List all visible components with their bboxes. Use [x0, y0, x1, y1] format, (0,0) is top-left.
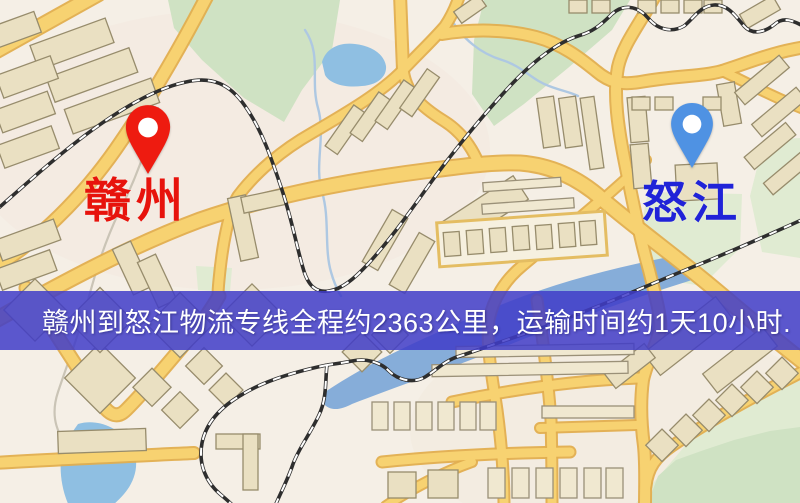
- destination-marker-icon[interactable]: [667, 101, 717, 170]
- map-canvas[interactable]: 赣州到怒江物流专线全程约2363公里，运输时间约1天10小时. 赣州 怒江: [0, 0, 800, 503]
- origin-marker-icon[interactable]: [122, 103, 174, 176]
- route-info-text: 赣州到怒江物流专线全程约2363公里，运输时间约1天10小时.: [0, 301, 791, 340]
- origin-label: 赣州: [84, 177, 188, 224]
- destination-label: 怒江: [642, 180, 742, 225]
- map-artwork: [0, 0, 800, 503]
- route-info-banner: 赣州到怒江物流专线全程约2363公里，运输时间约1天10小时.: [0, 291, 800, 350]
